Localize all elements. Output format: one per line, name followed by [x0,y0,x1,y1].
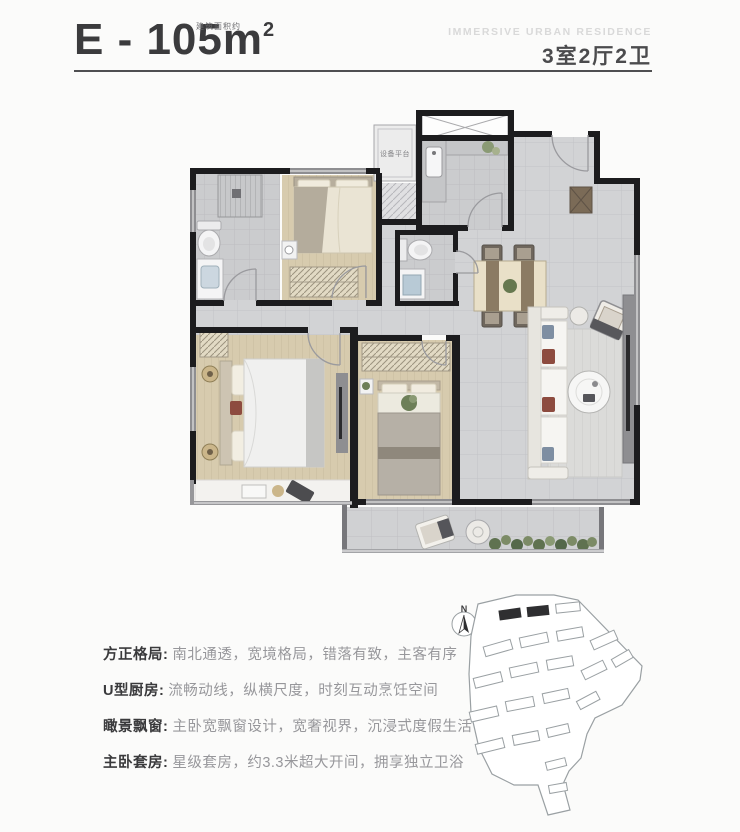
tv [626,335,630,431]
title-area-note: 建筑面积约 [196,21,241,32]
site-boundary [469,595,642,815]
sofa [528,307,541,479]
equipment-platform: 设备平台 [374,125,416,181]
shaft-void [380,183,417,219]
feature-item: U型厨房:流畅动线，纵横尺度，时刻互动烹饪空间 [103,679,443,700]
floor-plan: 设备平台 [190,95,640,560]
room-configuration: 3室2厅2卫 [542,40,652,70]
equipment-platform-label: 设备平台 [380,149,410,158]
north-label: N [461,604,468,614]
table-plant [503,279,517,293]
coffee-table [568,371,610,413]
entry-cabinet [570,187,592,213]
page-title: E - 105m2 [74,18,275,62]
feature-label: 主卧套房: [103,755,168,771]
page: E - 105m2 建筑面积约 IMMERSIVE URBAN RESIDENC… [0,0,740,832]
feature-list: 方正格局:南北通透，宽境格局，错落有致，主客有序 U型厨房:流畅动线，纵横尺度，… [103,643,443,787]
side-table [570,307,588,325]
feature-text: 流畅动线，纵横尺度，时刻互动烹饪空间 [168,683,438,699]
feature-text: 主卧宽飘窗设计，宽奢视界，沉浸式度假生活 [172,719,472,735]
header-divider [74,70,652,72]
balcony-table [466,520,490,544]
title-superscript: 2 [263,19,275,41]
entry-hall-floor [514,137,598,183]
site-plan: N [432,588,708,828]
feature-label: 方正格局: [103,647,168,663]
feature-label: U型厨房: [103,683,164,699]
living-room-furniture [528,295,637,479]
feature-label: 瞰景飘窗: [103,719,168,735]
wardrobe [200,331,228,357]
feature-item: 主卧套房:星级套房，约3.3米超大开间，拥享独立卫浴 [103,751,443,772]
feature-item: 方正格局:南北通透，宽境格局，错落有致，主客有序 [103,643,443,664]
subtitle-english: IMMERSIVE URBAN RESIDENCE [448,26,652,38]
feature-text: 星级套房，约3.3米超大开间，拥享独立卫浴 [172,755,464,771]
bedroom-2-furniture [282,177,372,297]
feature-text: 南北通透，宽境格局，错落有致，主客有序 [172,647,457,663]
feature-item: 瞰景飘窗:主卧宽飘窗设计，宽奢视界，沉浸式度假生活 [103,715,443,736]
